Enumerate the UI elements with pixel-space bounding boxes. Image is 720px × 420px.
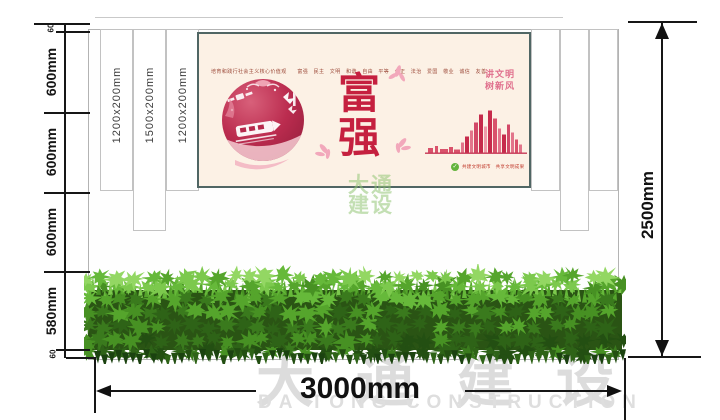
dim-left-tick: [44, 271, 90, 273]
petal-flourish-icon: [387, 64, 409, 86]
ext-line-bottom-left-h: [66, 357, 96, 359]
dim-label-600-1: 600mm: [43, 48, 59, 96]
dim-left-tick: [56, 349, 90, 351]
dim-label-60-top: 60: [47, 24, 56, 33]
dim-bottom-line-left: [106, 390, 256, 392]
poster-footer: ✓ 共建文明城市 共享文明成果: [451, 163, 524, 171]
dim-bottom-arrow-left-icon: [96, 385, 111, 397]
slat-label: 1500x200mm: [144, 67, 156, 144]
slat-left-2: 1500x200mm: [133, 29, 166, 231]
dim-label-60-bottom: 60: [49, 350, 58, 359]
ext-line-bottom-right-v: [624, 358, 626, 420]
dim-left-line: [64, 24, 66, 358]
dim-right-arrow-down-icon: [655, 340, 669, 356]
watermark-center: 大通 建设: [340, 176, 402, 216]
dim-label-600-3: 600mm: [43, 208, 59, 256]
green-badge-icon: ✓: [451, 163, 459, 171]
dim-label-600-2: 600mm: [43, 128, 59, 176]
watermark-center-line: 大通: [340, 176, 402, 196]
dim-left-tick: [44, 192, 90, 194]
watermark-center-line: 建设: [340, 196, 402, 216]
side-slogan-line: 树新风: [485, 80, 515, 92]
side-slogan-line: 讲文明: [485, 68, 515, 80]
slat-label: 1200x200mm: [111, 67, 123, 144]
dim-right-line: [661, 22, 663, 358]
poster-board: 培育和践行社会主义核心价值观 富强 民主 文明 和谐 自由 平等 公正 法治 爱…: [197, 32, 531, 188]
poster-footer-text: 共建文明城市 共享文明成果: [462, 164, 524, 170]
slat-label: 1200x200mm: [177, 67, 189, 144]
dim-bottom-line-right: [465, 390, 610, 392]
petal-flourish-icon: [313, 140, 335, 162]
slat-right-1: [531, 29, 560, 191]
slat-left-3: 1200x200mm: [166, 29, 199, 191]
drawing-canvas: 1200x200mm 1500x200mm 1200x200mm 培育和践行社会…: [0, 0, 720, 420]
slat-right-3: [589, 29, 618, 191]
dim-right-arrow-up-icon: [655, 23, 669, 39]
dim-right-tick-bottom: [628, 356, 701, 358]
dim-left-tick: [44, 112, 90, 114]
slat-right-2: [560, 29, 589, 231]
main-character: 强: [331, 116, 387, 160]
dim-label-580: 580mm: [43, 287, 59, 335]
poster-main-characters: 富 强: [331, 72, 387, 160]
main-character: 富: [331, 72, 387, 116]
dim-bottom-label: 3000mm: [255, 372, 465, 406]
slat-left-1: 1200x200mm: [100, 29, 133, 191]
dim-right-label: 2500mm: [638, 171, 658, 239]
poster-side-slogan: 讲文明 树新风: [485, 68, 515, 92]
hedge-graphic: [84, 264, 626, 364]
dim-bottom-arrow-right-icon: [607, 385, 622, 397]
skyline-graphic: [425, 108, 527, 160]
dim-left-tick: [34, 23, 90, 25]
petal-flourish-icon: [391, 134, 413, 156]
papercut-emblem-graphic: [217, 76, 311, 174]
dim-left-tick: [56, 31, 90, 33]
wall-top-edge-line: [95, 17, 563, 18]
